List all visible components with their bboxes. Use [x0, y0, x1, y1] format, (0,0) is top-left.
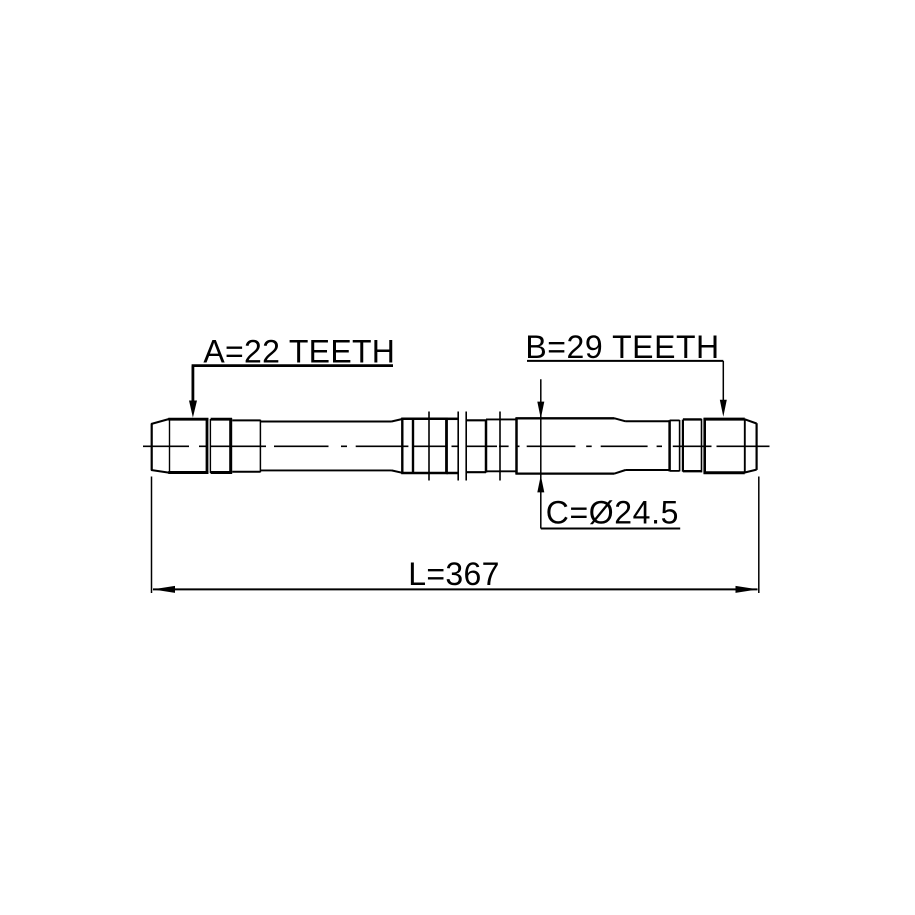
- svg-text:C=Ø24.5: C=Ø24.5: [546, 495, 679, 531]
- svg-text:L=367: L=367: [408, 556, 500, 592]
- svg-text:B=29 TEETH: B=29 TEETH: [525, 329, 719, 365]
- svg-text:A=22 TEETH: A=22 TEETH: [203, 334, 395, 370]
